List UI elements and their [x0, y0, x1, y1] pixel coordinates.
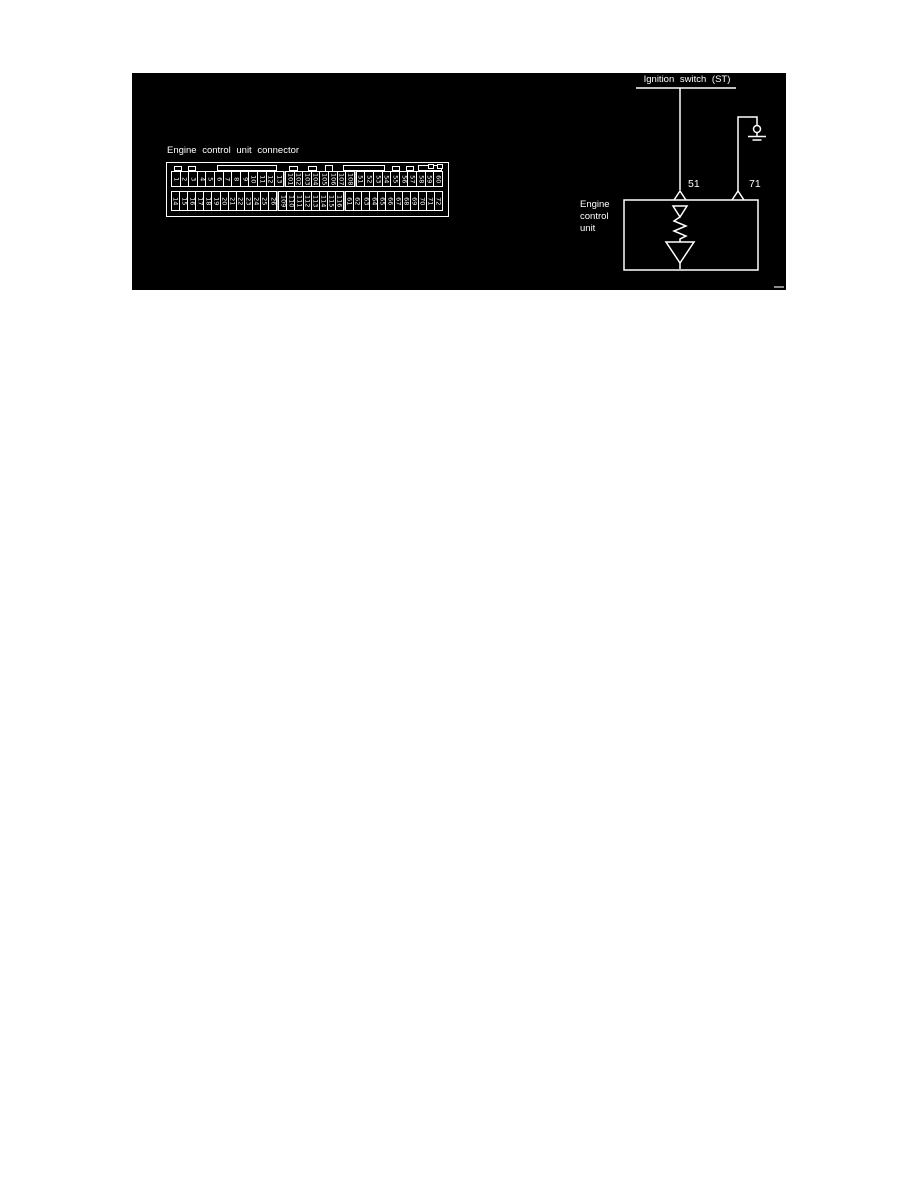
resistor-zigzag-icon	[674, 217, 686, 242]
small-diode-triangle-icon	[673, 206, 687, 217]
scan-artifact	[774, 286, 784, 288]
large-diode-triangle-icon	[666, 242, 694, 263]
wiring-diagram-panel: Engine control unit connector 1234567891…	[132, 73, 786, 290]
engine-control-unit-box	[624, 200, 758, 270]
connector-terminal-chevron-icon	[732, 191, 744, 200]
circuit-drawing	[132, 73, 786, 290]
chassis-ground-icon	[748, 126, 766, 141]
connector-terminal-chevron-icon	[674, 191, 686, 200]
